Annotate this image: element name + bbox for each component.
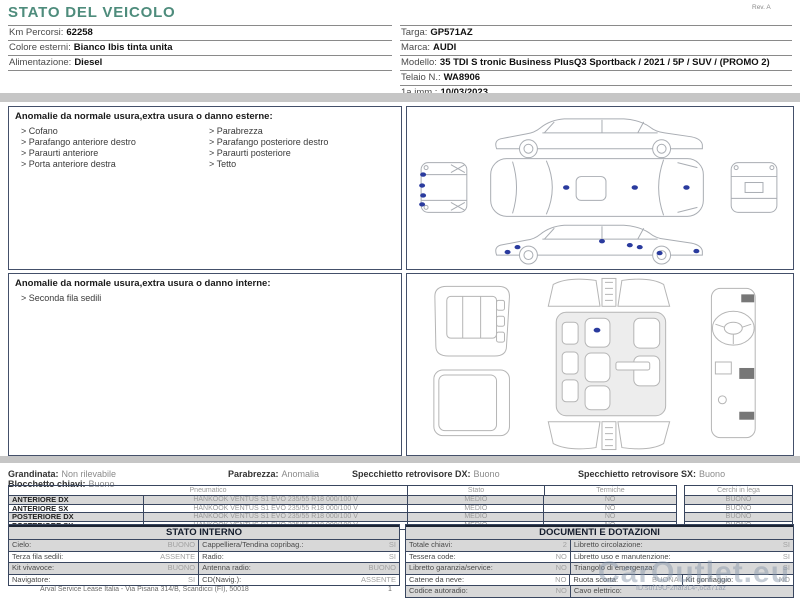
field-value: ASSENTE	[160, 552, 195, 563]
interior-anomalies-list: > Seconda fila sedili	[21, 293, 101, 304]
documenti-title: DOCUMENTI E DOTAZIONI	[406, 525, 793, 540]
car-rear-view	[731, 163, 777, 213]
condition-summary: Grandinata:Non rilevabile Parabrezza:Ano…	[0, 464, 800, 484]
field-label: Tessera code:	[409, 552, 456, 563]
anomaly-item: > Seconda fila sedili	[21, 293, 101, 304]
cerchi-value: BUONO	[685, 496, 792, 504]
tire-position: POSTERIORE DX	[9, 513, 143, 521]
exterior-anomalies-box: Anomalie da normale usura,extra usura o …	[8, 106, 402, 270]
exterior-anomalies-heading: Anomalie da normale usura,extra usura o …	[15, 111, 273, 122]
cerchi-row: BUONO	[685, 496, 792, 505]
info-label: Km Percorsi:	[9, 27, 63, 38]
field-value: NO	[779, 575, 790, 586]
info-label: Marca:	[401, 42, 430, 53]
tire-position: ANTERIORE SX	[9, 505, 143, 513]
stato-interno-row: Terza fila sedili:ASSENTE Radio:SI	[9, 552, 399, 564]
info-label: Telaio N.:	[401, 72, 441, 83]
rear-seats-view	[435, 286, 510, 356]
field-value: BUONA	[652, 575, 679, 586]
info-label: Targa:	[401, 27, 427, 38]
info-row-colore: Colore esterni:Bianco Ibis tinta unita	[8, 41, 392, 56]
anomaly-item: > Paraurti posteriore	[209, 148, 328, 159]
info-label: Alimentazione:	[9, 57, 71, 68]
damage-dots-exterior	[419, 172, 699, 255]
info-value: GP571AZ	[430, 27, 472, 38]
info-value: WA8906	[444, 72, 480, 83]
header-stato: Stato	[407, 486, 544, 495]
field-label: Cavo elettrico:	[574, 586, 622, 597]
anomaly-item: > Parabrezza	[209, 126, 328, 137]
tire-row: POSTERIORE DX HANKOOK VENTUS S1 EVO 235/…	[9, 513, 676, 522]
car-side-view-bottom	[496, 225, 703, 264]
field-value: SI	[188, 575, 195, 586]
car-side-view-top	[496, 119, 703, 158]
documenti-row: Catene da neve:NO Ruota scorta:BUONA Kit…	[406, 575, 793, 587]
interior-anomalies-heading: Anomalie da normale usura,extra usura o …	[15, 278, 271, 289]
info-label: Modello:	[401, 57, 437, 68]
summary-parabrezza: Parabrezza:Anomalia	[228, 464, 319, 482]
stato-interno-title: STATO INTERNO	[9, 525, 399, 540]
field-label: Catene da neve:	[409, 575, 464, 586]
anomaly-item: > Tetto	[209, 159, 328, 170]
tire-model: HANKOOK VENTUS S1 EVO 235/55 R18 000/100…	[143, 496, 408, 504]
vehicle-info-left: Km Percorsi:62258 Colore esterni:Bianco …	[8, 25, 392, 71]
field-label: Libretto garanzia/service:	[409, 563, 493, 574]
field-value: SI	[783, 563, 790, 574]
trunk-view	[434, 370, 510, 436]
cerchi-header: Cerchi in lega	[685, 486, 792, 496]
field-value: NO	[555, 575, 566, 586]
header-termiche: Termiche	[544, 486, 676, 495]
info-row-modello: Modello:35 TDI S tronic Business PlusQ3 …	[400, 56, 792, 71]
field-value: SI	[389, 540, 396, 551]
field-value: 2	[563, 540, 567, 551]
stato-interno-row: Navigatore:SI CD(Navig.):ASSENTE	[9, 575, 399, 586]
field-label: Cappelliera/Tendina copribag.:	[202, 540, 303, 551]
documenti-row: Tessera code:NO Libretto uso e manutenzi…	[406, 552, 793, 564]
info-row-km: Km Percorsi:62258	[8, 26, 392, 41]
field-label: Libretto uso e manutenzione:	[574, 552, 671, 563]
page-number: 1	[388, 586, 392, 593]
anomaly-item: > Paraurti anteriore	[21, 148, 136, 159]
exterior-anomalies-col2: > Parabrezza > Parafango posteriore dest…	[209, 126, 328, 170]
field-label: Libretto circolazione:	[574, 540, 643, 551]
cerchi-row: BUONO	[685, 505, 792, 514]
damage-dots-interior	[594, 328, 601, 333]
tire-table-header: Pneumatico Stato Termiche	[9, 486, 676, 496]
stato-interno-row: Cielo:BUONO Cappelliera/Tendina copribag…	[9, 540, 399, 552]
interior-diagram-box	[406, 273, 794, 456]
tire-position: ANTERIORE DX	[9, 496, 143, 504]
cabin-layout	[548, 278, 669, 449]
documenti-table: DOCUMENTI E DOTAZIONI Totale chiavi:2 Li…	[405, 524, 794, 598]
cerchi-row: BUONO	[685, 513, 792, 522]
field-label: Kit gonfiaggio:	[686, 575, 734, 586]
field-label: CD(Navig.):	[202, 575, 241, 586]
car-front-view	[421, 163, 467, 213]
anomaly-item: > Cofano	[21, 126, 136, 137]
tire-row: ANTERIORE SX HANKOOK VENTUS S1 EVO 235/5…	[9, 505, 676, 514]
tire-stato: MEDIO	[407, 505, 543, 513]
field-label: Navigatore:	[12, 575, 50, 586]
field-label: Totale chiavi:	[409, 540, 452, 551]
field-value: BUONO	[368, 563, 396, 574]
anomaly-item: > Parafango posteriore destro	[209, 137, 328, 148]
field-label: Radio:	[202, 552, 224, 563]
section-divider	[0, 93, 800, 102]
tire-termiche: NO	[543, 513, 676, 521]
stato-interno-table: STATO INTERNO Cielo:BUONO Cappelliera/Te…	[8, 524, 400, 586]
info-value: 62258	[66, 27, 92, 38]
field-label: Triangolo di emergenza:	[574, 563, 655, 574]
cerchi-value: BUONO	[685, 513, 792, 521]
info-value: Bianco Ibis tinta unita	[74, 42, 173, 53]
field-value: ASSENTE	[361, 575, 396, 586]
field-value: NO	[556, 563, 567, 574]
tire-model: HANKOOK VENTUS S1 EVO 235/55 R18 000/100…	[143, 513, 408, 521]
documenti-row: Totale chiavi:2 Libretto circolazione:SI	[406, 540, 793, 552]
page-title: STATO DEL VEICOLO	[8, 4, 176, 21]
field-label: Ruota scorta:	[573, 575, 618, 586]
documenti-row: Libretto garanzia/service:NO Triangolo d…	[406, 563, 793, 575]
field-value: BUONO	[168, 563, 196, 574]
section-divider	[0, 456, 800, 463]
tire-stato: MEDIO	[407, 496, 543, 504]
header-pneumatico: Pneumatico	[9, 486, 407, 495]
info-row-targa: Targa:GP571AZ	[400, 26, 792, 41]
tire-row: ANTERIORE DX HANKOOK VENTUS S1 EVO 235/5…	[9, 496, 676, 505]
info-row-marca: Marca:AUDI	[400, 41, 792, 56]
tire-stato: MEDIO	[407, 513, 543, 521]
interior-anomalies-box: Anomalie da normale usura,extra usura o …	[8, 273, 402, 456]
summary-specchietto-dx: Specchietto retrovisore DX:Buono	[352, 464, 500, 482]
field-label: Kit vivavoce:	[12, 563, 54, 574]
vehicle-report-page: STATO DEL VEICOLO Rev. A Km Percorsi:622…	[0, 0, 800, 600]
exterior-diagram-box	[406, 106, 794, 270]
stato-interno-row: Kit vivavoce:BUONO Antenna radio:BUONO	[9, 563, 399, 575]
info-label: Colore esterni:	[9, 42, 71, 53]
field-value: NO	[556, 586, 567, 597]
field-value: BUONO	[168, 540, 196, 551]
field-value: SI	[783, 540, 790, 551]
tire-termiche: NO	[543, 496, 676, 504]
cerchi-value: BUONO	[685, 505, 792, 513]
info-value: AUDI	[433, 42, 456, 53]
field-value: SI	[783, 552, 790, 563]
tire-termiche: NO	[543, 505, 676, 513]
interior-diagram	[407, 274, 791, 453]
field-value: SI	[389, 552, 396, 563]
field-value: NO	[556, 552, 567, 563]
header-cerchi: Cerchi in lega	[685, 486, 792, 495]
footer-address: Arval Service Lease Italia - Via Pisana …	[40, 586, 249, 593]
anomaly-item: > Parafango anteriore destro	[21, 137, 136, 148]
vehicle-info-right: Targa:GP571AZ Marca:AUDI Modello:35 TDI …	[400, 25, 792, 101]
info-row-alimentazione: Alimentazione:Diesel	[8, 56, 392, 71]
info-value: 35 TDI S tronic Business PlusQ3 Sportbac…	[440, 57, 770, 68]
info-row-telaio: Telaio N.:WA8906	[400, 71, 792, 86]
revision-label: Rev. A	[752, 4, 771, 11]
summary-specchietto-sx: Specchietto retrovisore SX:Buono	[578, 464, 725, 482]
field-label: Codice autoradio:	[409, 586, 468, 597]
field-label: Cielo:	[12, 540, 31, 551]
exterior-car-diagram	[407, 107, 791, 267]
dashboard-view	[711, 288, 755, 437]
documenti-row: Codice autoradio:NO Cavo elettrico:	[406, 586, 793, 597]
car-top-view	[491, 159, 704, 217]
field-label: Antenna radio:	[202, 563, 251, 574]
anomaly-item: > Porta anteriore destra	[21, 159, 136, 170]
exterior-anomalies-col1: > Cofano > Parafango anteriore destro > …	[21, 126, 136, 170]
tire-model: HANKOOK VENTUS S1 EVO 235/55 R18 000/100…	[143, 505, 408, 513]
field-label: Terza fila sedili:	[12, 552, 63, 563]
info-value: Diesel	[74, 57, 102, 68]
